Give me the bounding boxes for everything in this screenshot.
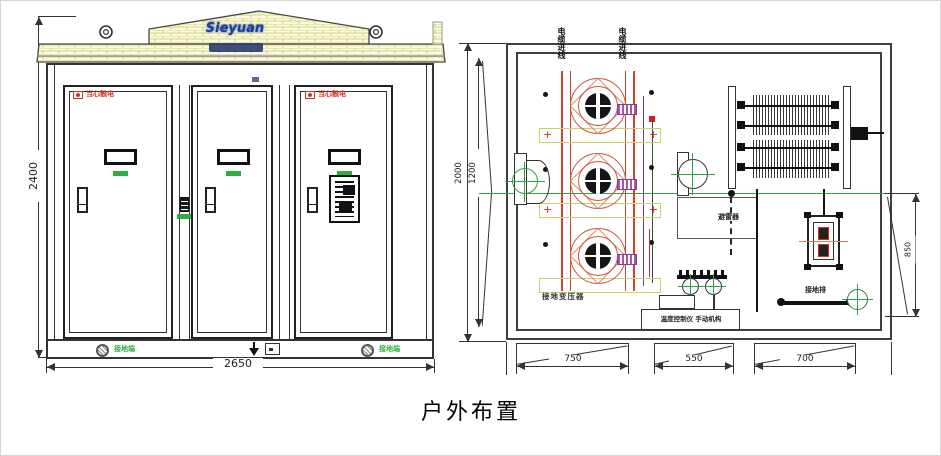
operator-ticks	[679, 270, 725, 275]
control-box-label: 温度控制仪 手动机构	[645, 316, 737, 323]
dim-b2-ext	[733, 343, 734, 374]
datum-cross-icon: +	[649, 128, 658, 141]
resistor-row	[737, 147, 837, 149]
ground-bar-dot	[777, 298, 785, 306]
resistor-terminal	[831, 121, 839, 129]
red-marker-line	[649, 229, 650, 277]
dim-bottom-ext	[506, 342, 507, 375]
terminal-dot	[649, 165, 654, 170]
dim-right-label: 850	[905, 236, 916, 264]
dim-b3-arrow-icon	[847, 362, 855, 370]
dim-b1-line	[516, 366, 629, 367]
dim-b2-arrow-icon	[655, 362, 663, 370]
switch-tab	[804, 264, 811, 270]
mid-crosshair-v	[692, 153, 693, 195]
transformer-unit-3-core	[585, 243, 611, 269]
busbar-line	[643, 96, 644, 286]
dim-b2-arrow-icon	[725, 362, 733, 370]
dim-b1-arrow-icon	[517, 362, 525, 370]
dim-b1-ext	[628, 343, 629, 374]
drawing-canvas: 2400 Sieyuan	[0, 0, 941, 456]
aux-box	[659, 295, 695, 309]
fan-crosshair-v	[524, 162, 525, 202]
dim-leader-diagonal	[482, 193, 492, 326]
cable-entry-label: 电缆进线	[552, 27, 565, 71]
datum-cross-icon: +	[543, 128, 552, 141]
resistor-rail	[728, 86, 736, 189]
mid-crosshair-h	[671, 174, 715, 175]
transformer-unit-1-core	[585, 93, 611, 119]
resistor-row	[737, 105, 837, 107]
transformer-rail	[561, 71, 563, 291]
resistor-row	[737, 167, 837, 169]
fan-crosshair-h	[505, 181, 545, 182]
resistor-rail	[843, 86, 851, 189]
resistor-terminal	[831, 163, 839, 171]
dim-b2-label: 550	[669, 355, 719, 366]
bushing-stack	[617, 104, 637, 115]
dim-outer-arrow-icon	[464, 43, 472, 51]
terminal-dot	[543, 242, 548, 247]
ground-bar-label: 接地排	[805, 287, 826, 294]
resistor-row	[737, 125, 837, 127]
switch-element	[818, 244, 829, 257]
feeder-line	[823, 189, 825, 217]
dim-b1-arrow-icon	[620, 362, 628, 370]
dim-bottom-ext	[891, 342, 892, 375]
resistor-terminal	[737, 143, 745, 151]
dim-outer-label: 2000	[455, 149, 467, 197]
switch-tab	[804, 212, 811, 218]
transformer-unit-2-core	[585, 168, 611, 194]
dim-b3-line	[754, 366, 856, 367]
dim-b3-top	[754, 343, 856, 344]
arrester-column	[730, 197, 732, 255]
dim-b3-ext	[855, 343, 856, 374]
dim-inner-label: 1200	[469, 149, 481, 197]
resistor-connector	[851, 127, 868, 140]
dim-outer-arrow-icon	[464, 334, 472, 342]
terminal-dot	[543, 92, 548, 97]
datum-cross-icon: +	[649, 203, 658, 216]
resistor-terminal	[737, 101, 745, 109]
resistor-terminal	[831, 101, 839, 109]
switch-axis	[799, 241, 848, 242]
datum-cross-icon: +	[543, 203, 552, 216]
resistor-element-hatch	[753, 140, 829, 178]
dim-right-arrow-icon	[912, 194, 920, 202]
switch-tab	[836, 264, 843, 270]
corner-crosshair-v	[857, 284, 858, 315]
dim-outer-line	[467, 43, 468, 342]
switch-element	[818, 227, 829, 240]
dim-b3-label: 700	[780, 355, 830, 366]
arrester-label: 避雷器	[718, 214, 739, 221]
plan-view: 2000 1200 电缆进线 电缆进线 + + + +	[1, 1, 941, 401]
feeder-line	[756, 189, 758, 312]
dim-b3-arrow-icon	[755, 362, 763, 370]
terminal-dot	[649, 90, 654, 95]
dim-b1-top	[516, 343, 629, 344]
bushing-stack	[617, 254, 637, 265]
resistor-terminal	[737, 163, 745, 171]
resistor-element-hatch	[753, 95, 829, 135]
dim-b2-top	[654, 343, 734, 344]
transformer-label: 接地变压器	[542, 293, 585, 301]
dim-right-arrow-icon	[912, 309, 920, 317]
cable-entry-label: 电缆进线	[613, 27, 626, 71]
busbar-line	[652, 121, 653, 283]
dim-b2-line	[654, 366, 734, 367]
junction-dot	[649, 116, 655, 122]
dim-leader-diagonal	[482, 61, 492, 194]
dim-b1-label: 750	[549, 355, 597, 366]
resistor-terminal	[831, 143, 839, 151]
switch-tab	[836, 212, 843, 218]
caption: 户外布置	[371, 394, 571, 424]
arrester-dot	[728, 190, 735, 197]
resistor-terminal	[737, 121, 745, 129]
resistor-connector-stub	[868, 132, 884, 134]
ground-bar	[779, 301, 851, 305]
operator-bar	[677, 275, 727, 279]
bushing-stack	[617, 179, 637, 190]
